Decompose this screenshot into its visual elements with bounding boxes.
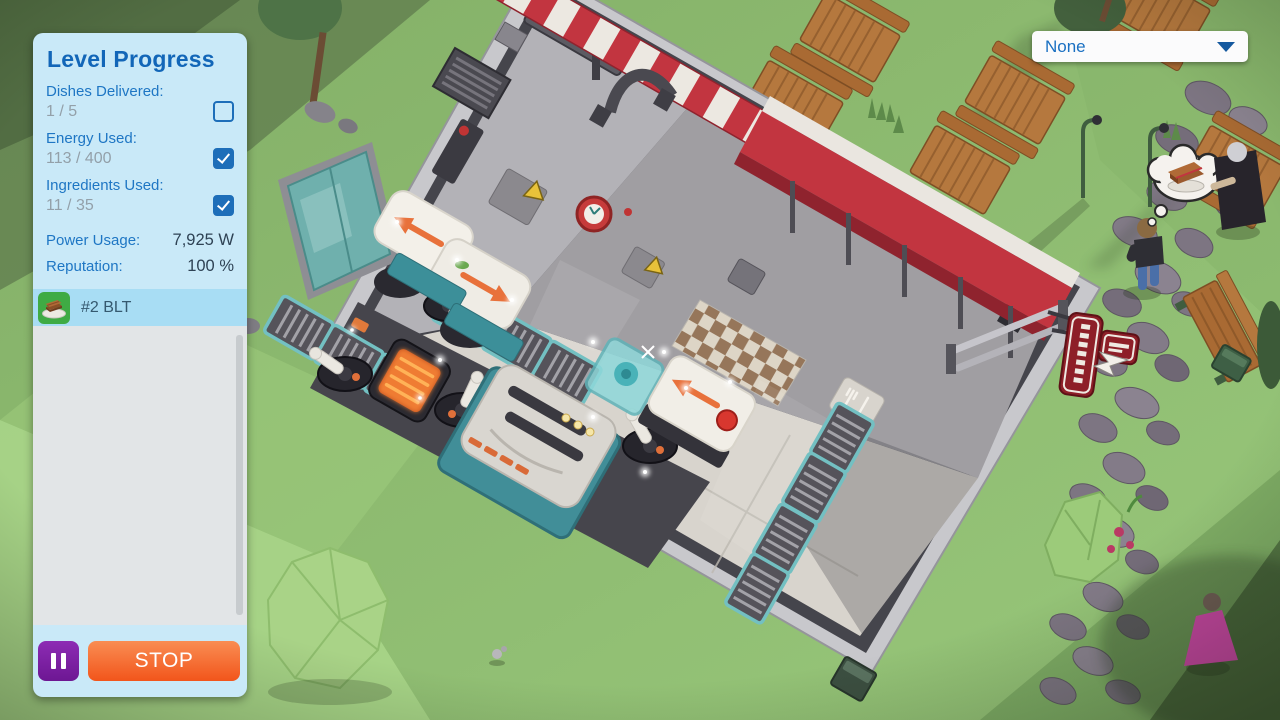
objective-dishes-delivered: Dishes Delivered: 1 / 5	[33, 75, 247, 122]
panel-title: Level Progress	[47, 46, 233, 73]
reputation-row: Reputation: 100 %	[46, 257, 234, 276]
panel-actions: STOP	[33, 625, 247, 697]
stat-label: Reputation:	[46, 258, 123, 275]
power-usage-value: 7,925 W	[173, 231, 234, 250]
pause-icon	[51, 653, 56, 669]
objective-value: 1 / 5	[46, 103, 77, 121]
order-list[interactable]: #2 BLT	[33, 289, 247, 625]
objective-label: Ingredients Used:	[46, 177, 234, 194]
pause-icon	[61, 653, 66, 669]
energy-used-checkbox[interactable]	[213, 148, 234, 169]
order-row-blt[interactable]: #2 BLT	[33, 289, 247, 326]
game-viewport[interactable]: Level Progress Dishes Delivered: 1 / 5 E…	[0, 0, 1280, 720]
objective-energy-used: Energy Used: 113 / 400	[33, 122, 247, 169]
objective-ingredients-used: Ingredients Used: 11 / 35	[33, 169, 247, 216]
power-usage-row: Power Usage: 7,925 W	[46, 231, 234, 250]
ingredients-used-checkbox[interactable]	[213, 195, 234, 216]
stats-block: Power Usage: 7,925 W Reputation: 100 %	[33, 224, 247, 276]
blt-dish-icon	[38, 292, 70, 324]
objective-value: 113 / 400	[46, 150, 112, 168]
pause-button[interactable]	[38, 641, 79, 681]
stat-label: Power Usage:	[46, 232, 140, 249]
stop-button[interactable]: STOP	[88, 641, 240, 681]
level-progress-panel: Level Progress Dishes Delivered: 1 / 5 E…	[33, 33, 247, 697]
dropdown-selected-value: None	[1045, 37, 1086, 57]
objective-label: Dishes Delivered:	[46, 83, 234, 100]
objective-value: 11 / 35	[46, 197, 94, 215]
order-label: #2 BLT	[81, 299, 131, 317]
objective-label: Energy Used:	[46, 130, 234, 147]
view-dropdown[interactable]: None	[1032, 31, 1248, 62]
reputation-value: 100 %	[187, 257, 234, 276]
dishes-delivered-checkbox[interactable]	[213, 101, 234, 122]
chevron-down-icon	[1217, 42, 1235, 52]
order-list-scrollbar[interactable]	[236, 335, 243, 615]
